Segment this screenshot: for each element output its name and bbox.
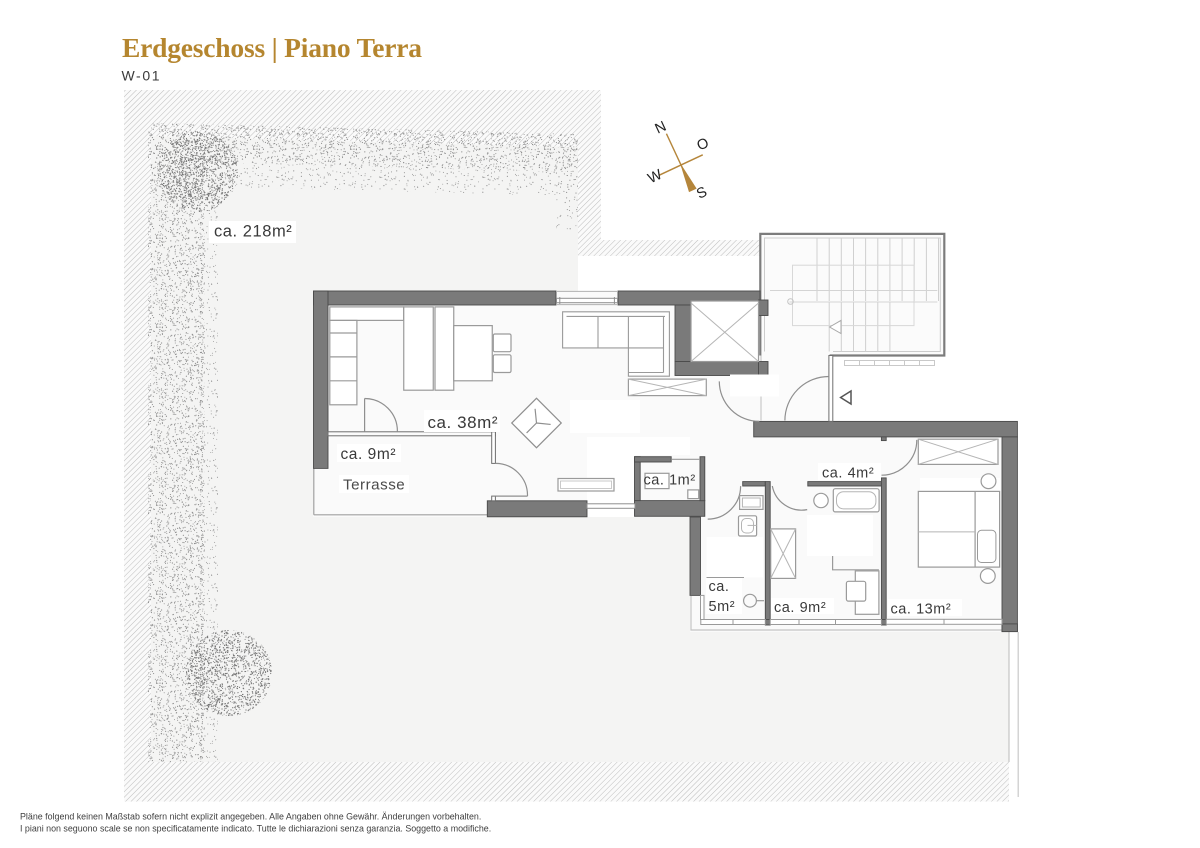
- svg-text:ca.: ca.: [709, 579, 730, 595]
- svg-text:ca. 9m²: ca. 9m²: [774, 600, 826, 616]
- svg-text:Erdgeschoss | Piano Terra: Erdgeschoss | Piano Terra: [122, 32, 422, 63]
- svg-text:I piani non seguono scale se n: I piani non seguono scale se non specifi…: [20, 824, 491, 834]
- svg-text:ca. 4m²: ca. 4m²: [822, 466, 874, 482]
- svg-text:ca. 1m²: ca. 1m²: [644, 473, 696, 489]
- svg-text:Pläne folgend keinen Maßstab s: Pläne folgend keinen Maßstab sofern nich…: [20, 812, 481, 822]
- svg-text:ca. 38m²: ca. 38m²: [428, 413, 499, 432]
- svg-text:5m²: 5m²: [709, 599, 736, 615]
- svg-text:W-01: W-01: [122, 68, 162, 84]
- svg-text:ca. 13m²: ca. 13m²: [891, 602, 952, 618]
- svg-text:ca. 218m²: ca. 218m²: [214, 223, 292, 241]
- svg-text:ca. 9m²: ca. 9m²: [341, 446, 397, 463]
- svg-text:Terrasse: Terrasse: [343, 477, 405, 494]
